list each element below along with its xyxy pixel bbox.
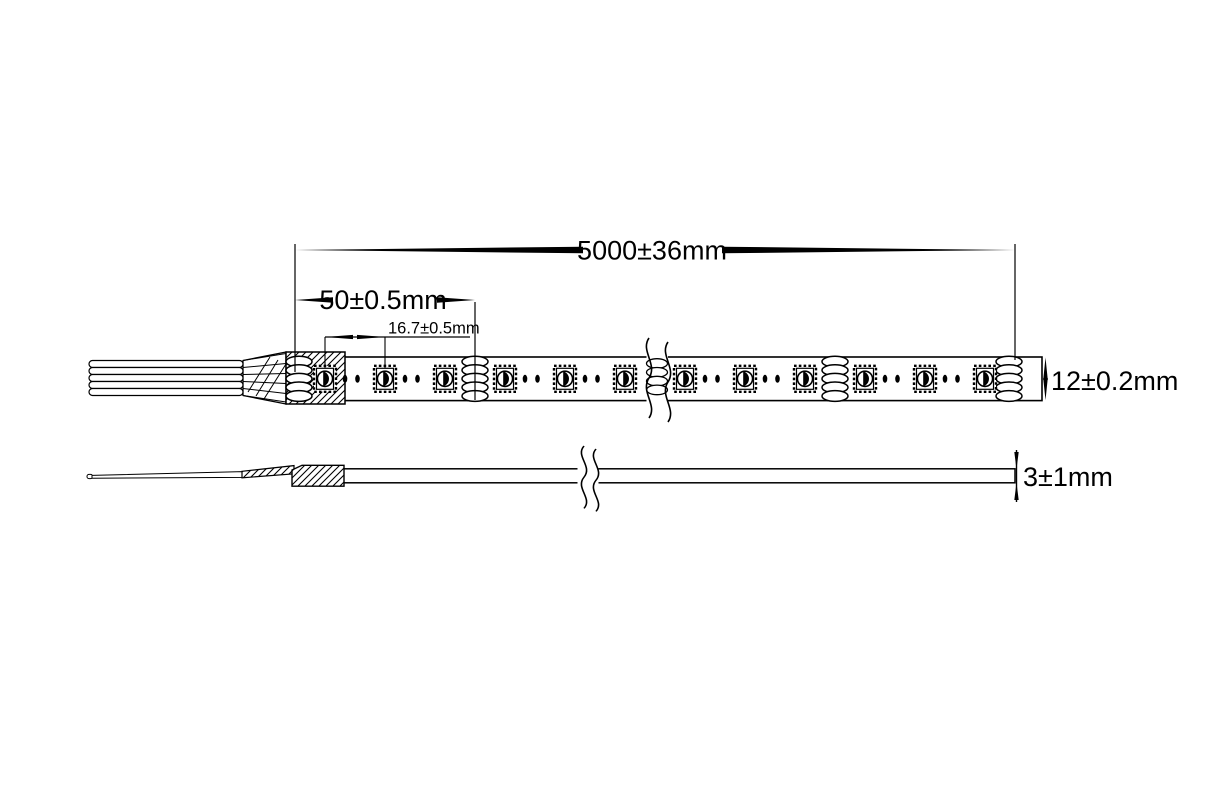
- led-package: [914, 366, 936, 392]
- led-package: [314, 366, 336, 392]
- drawing-canvas: 5000±36mm 50±0.5mm 16.7±0.5mm 12±0.2mm 3…: [0, 0, 1214, 808]
- solder-pad-group: [822, 356, 848, 401]
- cut-increment-label: 50±0.5mm: [319, 285, 446, 315]
- led-pitch-label: 16.7±0.5mm: [388, 320, 480, 338]
- dimension-strip-thickness: 3±1mm: [1014, 450, 1113, 502]
- wire-funnel: [243, 352, 286, 404]
- dimension-strip-width: 12±0.2mm: [1043, 358, 1178, 401]
- led-package: [794, 366, 816, 392]
- wire-bundle: [89, 361, 243, 396]
- solder-pad-group: [996, 356, 1022, 401]
- solder-pad-group: [286, 356, 312, 401]
- break-symbol-top: [646, 338, 670, 422]
- led-package: [374, 366, 396, 392]
- side-wire: [87, 472, 242, 479]
- side-view: [87, 446, 1015, 511]
- led-package: [554, 366, 576, 392]
- led-package: [974, 366, 996, 392]
- side-wire-sleeve: [242, 466, 294, 478]
- led-package: [674, 366, 696, 392]
- break-symbol-side: [578, 446, 599, 511]
- top-view: [89, 338, 1042, 422]
- led-package: [734, 366, 756, 392]
- side-heat-shrink-block: [292, 465, 344, 486]
- led-package: [854, 366, 876, 392]
- led-strip-dimension-drawing: 5000±36mm 50±0.5mm 16.7±0.5mm 12±0.2mm 3…: [0, 0, 1214, 808]
- led-package: [434, 366, 456, 392]
- strip-width-label: 12±0.2mm: [1051, 366, 1178, 396]
- overall-length-label: 5000±36mm: [577, 236, 727, 266]
- side-strip-body: [322, 469, 1015, 483]
- led-package: [614, 366, 636, 392]
- led-package: [494, 366, 516, 392]
- strip-thickness-label: 3±1mm: [1023, 462, 1113, 492]
